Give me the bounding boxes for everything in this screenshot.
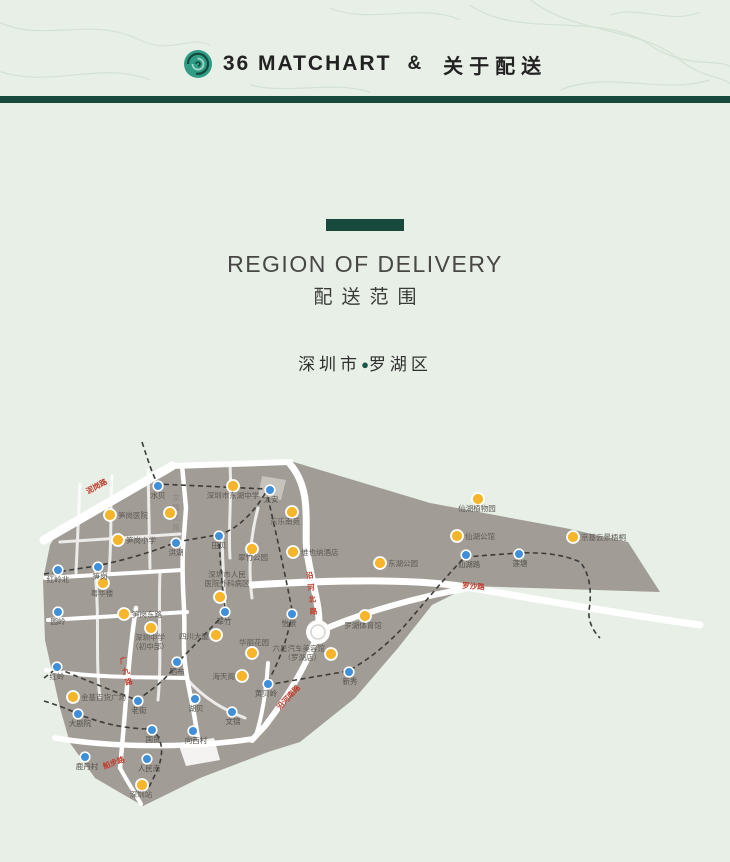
station-dot <box>147 725 157 735</box>
road-label: 泥岗路 <box>84 476 109 496</box>
poi-dot <box>567 531 579 543</box>
location-city: 深圳市 <box>298 355 361 374</box>
poi-label: 笋岗医院 <box>118 510 148 520</box>
brand-name: 36 MATCHART <box>223 52 392 76</box>
station-dot <box>172 657 182 667</box>
station-dot <box>133 696 143 706</box>
header-divider <box>0 96 730 103</box>
poi-dot <box>214 591 226 603</box>
poi-label: （初中部） <box>131 641 169 651</box>
road-label: 罗沙路 <box>462 580 486 592</box>
station-label: 红岭 <box>50 671 65 681</box>
station-dot <box>80 752 90 762</box>
station-dot <box>220 607 230 617</box>
station-dot <box>287 609 297 619</box>
station-dot <box>344 667 354 677</box>
poi-label: （罗湖店） <box>284 652 322 662</box>
poi-label: 四川大厦 <box>179 631 209 641</box>
station-dot <box>73 709 83 719</box>
poi-dot <box>118 608 130 620</box>
poi-label: 海天阁 <box>213 671 236 681</box>
poi-label: 医院外科病区 <box>205 578 250 588</box>
poi-label: 东湖公园 <box>388 558 418 568</box>
luohu-district-map: 泥岗路文锦北路沿河北路罗沙路广九路沿河南路船步路 笋岗医院笋岗小学深圳市东湖中学… <box>0 438 730 857</box>
location-dot-icon: ● <box>361 357 369 372</box>
station-dot <box>171 538 181 548</box>
station-dot <box>190 694 200 704</box>
poi-label: 深圳站 <box>130 789 153 799</box>
station-dot <box>214 531 224 541</box>
station-dot <box>265 485 275 495</box>
poi-label: 华丽花园 <box>239 637 269 647</box>
page-header: 36 MATCHART & 关于配送 <box>0 44 730 84</box>
station-label: 怡景 <box>282 618 297 628</box>
brand-ampersand: & <box>407 53 421 75</box>
section-title-en: REGION OF DELIVERY <box>0 251 730 278</box>
station-label: 新秀 <box>343 676 358 686</box>
poi-dot <box>451 530 463 542</box>
poi-dot <box>112 534 124 546</box>
poi-label: 笋岗小学 <box>126 535 156 545</box>
station-dot <box>153 481 163 491</box>
poi-dot <box>104 509 116 521</box>
station-label: 鹿丹村 <box>76 761 99 771</box>
station-label: 莲塘 <box>513 558 528 568</box>
poi-label: 翠竹公园 <box>238 552 268 562</box>
road-label-text: 泥岗路 <box>84 476 109 496</box>
poi-dot <box>325 648 337 660</box>
poi-label: 仙湖公馆 <box>465 531 495 541</box>
station-label: 翠竹 <box>217 616 232 626</box>
station-label: 洪湖 <box>169 547 184 557</box>
station-dot <box>188 726 198 736</box>
station-label: 晒布 <box>170 666 185 676</box>
station-label: 老街 <box>132 705 147 715</box>
road-interchange <box>306 620 330 644</box>
station-dot <box>53 607 63 617</box>
station-label: 园岭 <box>51 616 66 626</box>
poi-label: 深圳市人民 <box>208 569 246 579</box>
poi-label: 粤华楼 <box>91 588 114 598</box>
poi-dot <box>164 507 176 519</box>
station-label: 人民南 <box>138 763 161 773</box>
poi-dot <box>246 647 258 659</box>
station-dot <box>514 549 524 559</box>
poi-dot <box>210 629 222 641</box>
station-label: 黄贝岭 <box>255 688 278 698</box>
road-label-text: 罗沙路 <box>462 580 486 592</box>
poi-label: 东乐南苑 <box>270 516 300 526</box>
station-dot <box>461 550 471 560</box>
poi-dot <box>374 557 386 569</box>
road-label-char: 文 <box>172 492 180 502</box>
station-label: 文锦 <box>226 716 241 726</box>
station-label: 大剧院 <box>69 718 92 728</box>
poi-label: 金基百货广场 <box>81 692 126 702</box>
location-district: 罗湖区 <box>369 355 432 374</box>
poi-dot <box>287 546 299 558</box>
delivery-map: 泥岗路文锦北路沿河北路罗沙路广九路沿河南路船步路 笋岗医院笋岗小学深圳市东湖中学… <box>0 438 730 857</box>
poi-label: 六星汽车美容馆 <box>273 643 326 653</box>
poi-label: 京基云景梧桐 <box>581 532 626 542</box>
road-label-char: 路 <box>172 522 180 532</box>
station-label: 田贝 <box>212 541 227 550</box>
poi-dot <box>67 691 79 703</box>
station-dot <box>227 707 237 717</box>
station-dot <box>142 754 152 764</box>
section-title-zh: 配送范围 <box>0 282 730 309</box>
poi-label: 维也纳酒店 <box>301 547 339 557</box>
rose-logo-icon <box>183 49 213 79</box>
station-dot <box>53 565 63 575</box>
station-dot <box>52 662 62 672</box>
station-label: 湖贝 <box>189 704 204 713</box>
station-label: 红岭北 <box>47 574 70 584</box>
poi-dot <box>236 670 248 682</box>
poi-label: 仙湖植物园 <box>458 503 496 513</box>
station-label: 向西村 <box>185 735 208 745</box>
poi-label: 深圳中学 <box>135 632 165 642</box>
station-label: 太安 <box>264 494 279 504</box>
section-accent-bar <box>326 219 404 231</box>
station-dot <box>93 562 103 572</box>
station-label: 笋岗 <box>93 571 108 581</box>
page-title-zh: 关于配送 <box>437 50 547 79</box>
poi-label: 笋岗东路 <box>132 609 162 619</box>
station-label: 水贝 <box>151 490 166 500</box>
poi-label: 罗湖体育馆 <box>344 620 382 630</box>
poi-label: 深圳市东湖中学 <box>207 490 260 500</box>
delivery-location: 深圳市●罗湖区 <box>0 350 730 375</box>
station-dot <box>263 679 273 689</box>
station-label: 仙湖路 <box>458 559 481 569</box>
station-label: 国贸 <box>146 734 161 744</box>
